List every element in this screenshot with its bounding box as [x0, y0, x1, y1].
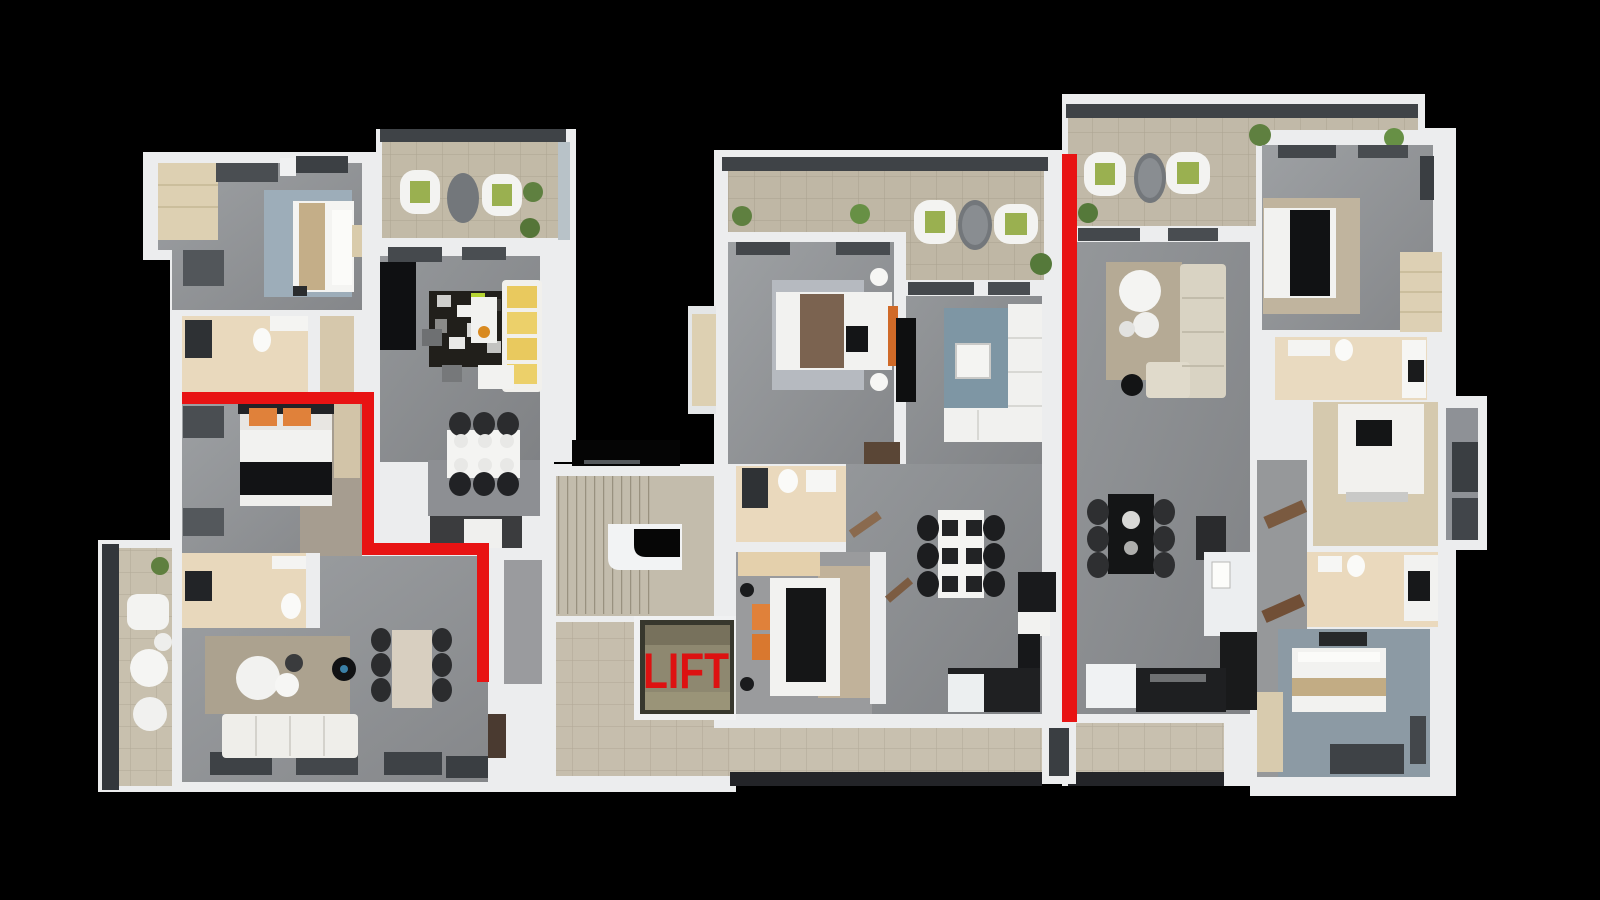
svg-text:LIFT: LIFT: [643, 643, 729, 699]
